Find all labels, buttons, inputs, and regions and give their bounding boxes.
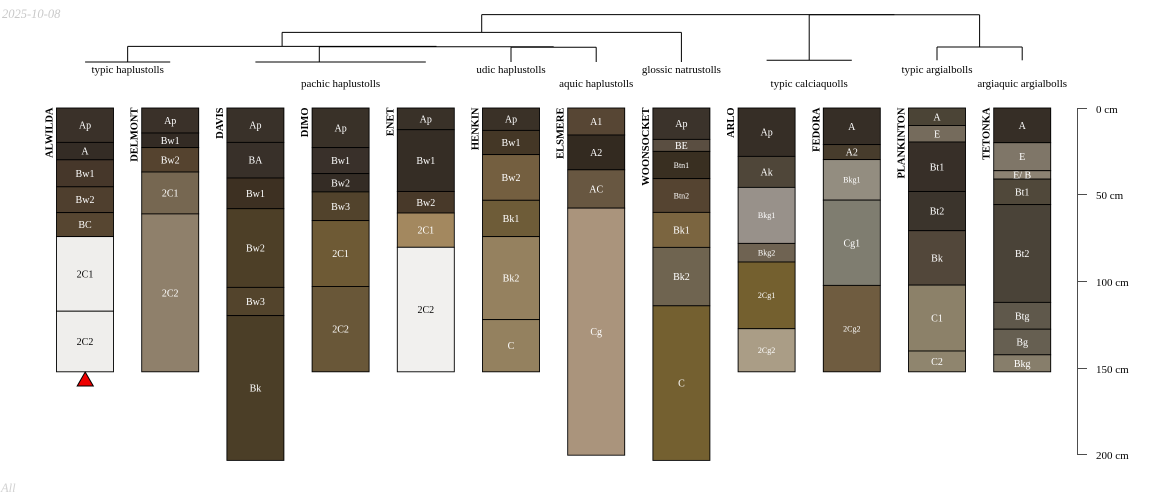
svg-text:BC: BC <box>78 220 92 231</box>
svg-text:Ap: Ap <box>79 121 91 132</box>
svg-text:Bkg1: Bkg1 <box>843 176 860 185</box>
svg-text:ELSMERE: ELSMERE <box>556 108 567 159</box>
svg-text:C: C <box>678 379 685 390</box>
svg-text:PLANKINTON: PLANKINTON <box>897 107 908 178</box>
svg-text:aquic haplustolls: aquic haplustolls <box>559 78 633 90</box>
svg-text:Bw1: Bw1 <box>76 169 95 180</box>
svg-text:Bkg2: Bkg2 <box>758 249 775 258</box>
svg-text:Bk1: Bk1 <box>503 214 520 225</box>
svg-text:Ap: Ap <box>249 121 261 132</box>
svg-text:C2: C2 <box>931 357 943 368</box>
svg-text:2Cg2: 2Cg2 <box>843 324 860 333</box>
svg-text:DAVIS: DAVIS <box>215 107 226 138</box>
svg-text:Ap: Ap <box>505 115 517 126</box>
svg-text:A: A <box>1019 121 1027 132</box>
svg-text:2C1: 2C1 <box>332 249 349 260</box>
svg-text:Bw2: Bw2 <box>331 178 350 189</box>
svg-text:DIMO: DIMO <box>300 108 311 138</box>
svg-text:typic haplustolls: typic haplustolls <box>91 64 163 76</box>
svg-text:Bk2: Bk2 <box>503 274 520 285</box>
svg-text:Bt1: Bt1 <box>930 162 944 173</box>
svg-text:A: A <box>81 147 89 158</box>
svg-text:A2: A2 <box>846 148 858 159</box>
svg-text:A1: A1 <box>590 117 602 128</box>
svg-text:Bw3: Bw3 <box>246 297 265 308</box>
svg-text:2C2: 2C2 <box>162 288 179 299</box>
svg-text:2C1: 2C1 <box>417 226 434 237</box>
svg-text:Bk2: Bk2 <box>673 272 690 283</box>
svg-text:2025-10-08: 2025-10-08 <box>2 7 61 21</box>
svg-text:A: A <box>848 122 856 133</box>
svg-text:Ap: Ap <box>760 128 772 139</box>
svg-text:Ap: Ap <box>334 123 346 134</box>
svg-text:typic argialbolls: typic argialbolls <box>902 64 973 76</box>
svg-text:Ak: Ak <box>760 167 772 178</box>
svg-text:50 cm: 50 cm <box>1096 190 1124 202</box>
svg-text:100 cm: 100 cm <box>1096 277 1129 289</box>
svg-text:Bw1: Bw1 <box>246 189 265 200</box>
svg-text:2Cg2: 2Cg2 <box>758 346 775 355</box>
svg-text:udic haplustolls: udic haplustolls <box>476 64 545 76</box>
svg-text:Bkg: Bkg <box>1014 359 1031 370</box>
svg-text:C: C <box>508 341 515 352</box>
svg-text:E: E <box>934 129 940 140</box>
svg-text:argiaquic argialbolls: argiaquic argialbolls <box>977 78 1067 90</box>
svg-text:DELMONT: DELMONT <box>130 108 141 162</box>
svg-text:Cg1: Cg1 <box>843 238 860 249</box>
svg-text:Bw1: Bw1 <box>161 136 180 147</box>
svg-text:ENET: ENET <box>385 108 396 137</box>
svg-text:Bt2: Bt2 <box>930 207 944 218</box>
svg-text:Bt1: Bt1 <box>1015 187 1029 198</box>
svg-text:Btn2: Btn2 <box>674 191 690 200</box>
svg-text:2C1: 2C1 <box>162 188 179 199</box>
svg-text:2Cg1: 2Cg1 <box>758 291 775 300</box>
svg-text:Ap: Ap <box>420 114 432 125</box>
svg-text:Bk1: Bk1 <box>673 225 690 236</box>
svg-text:Bk: Bk <box>250 384 262 395</box>
svg-text:2C2: 2C2 <box>417 305 434 316</box>
svg-text:Bw2: Bw2 <box>161 155 180 166</box>
svg-text:HENKIN: HENKIN <box>471 107 482 150</box>
svg-text:ALWILDA: ALWILDA <box>45 107 56 158</box>
svg-text:Ap: Ap <box>164 116 176 127</box>
svg-text:AC: AC <box>589 184 603 195</box>
svg-text:E: E <box>1019 152 1025 163</box>
svg-text:Bt2: Bt2 <box>1015 249 1029 260</box>
svg-text:pachic haplustolls: pachic haplustolls <box>301 78 380 90</box>
svg-text:A2: A2 <box>590 148 602 159</box>
svg-text:2C2: 2C2 <box>332 325 349 336</box>
svg-text:Bkg1: Bkg1 <box>758 211 775 220</box>
svg-text:Bw2: Bw2 <box>76 195 95 206</box>
svg-text:glossic natrustolls: glossic natrustolls <box>642 64 721 76</box>
svg-text:Bw1: Bw1 <box>331 156 350 167</box>
svg-text:2C1: 2C1 <box>77 269 94 280</box>
svg-text:Btg: Btg <box>1015 311 1029 322</box>
svg-text:All: All <box>0 481 16 495</box>
svg-text:Ap: Ap <box>675 119 687 130</box>
svg-text:150 cm: 150 cm <box>1096 364 1129 376</box>
svg-text:200 cm: 200 cm <box>1096 450 1129 462</box>
svg-text:ARLO: ARLO <box>726 108 737 138</box>
svg-text:Bw2: Bw2 <box>246 244 265 255</box>
svg-text:Bk: Bk <box>931 253 943 264</box>
svg-text:BA: BA <box>248 156 263 167</box>
svg-text:Btn1: Btn1 <box>674 161 690 170</box>
svg-text:Bw1: Bw1 <box>502 138 521 149</box>
svg-text:Cg: Cg <box>590 327 602 338</box>
svg-text:Bw3: Bw3 <box>331 202 350 213</box>
svg-text:FEDORA: FEDORA <box>811 107 822 152</box>
svg-text:Bw1: Bw1 <box>416 156 435 167</box>
svg-text:Bw2: Bw2 <box>416 198 435 209</box>
svg-text:Bg: Bg <box>1016 338 1028 349</box>
svg-text:A: A <box>933 112 941 123</box>
svg-text:TETONKA: TETONKA <box>982 107 993 160</box>
svg-text:C1: C1 <box>931 314 943 325</box>
svg-text:2C2: 2C2 <box>77 337 94 348</box>
svg-text:typic calciaquolls: typic calciaquolls <box>771 78 848 90</box>
svg-text:Bw2: Bw2 <box>502 173 521 184</box>
svg-text:BE: BE <box>675 141 688 152</box>
svg-text:WOONSOCKET: WOONSOCKET <box>641 108 652 186</box>
svg-text:0 cm: 0 cm <box>1096 104 1118 116</box>
